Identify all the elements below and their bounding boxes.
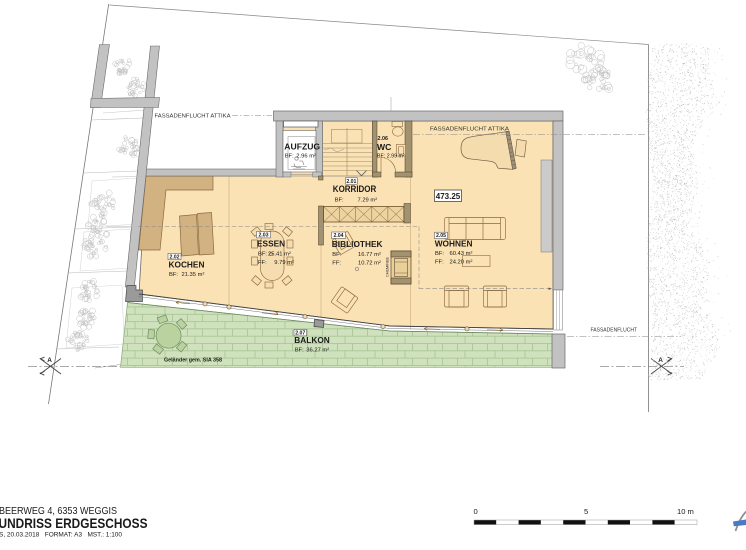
svg-text:FASSADENFLUCHT ATTIKA: FASSADENFLUCHT ATTIKA <box>155 114 231 120</box>
svg-text:CHEMINEE: CHEMINEE <box>386 257 390 278</box>
svg-text:2.06: 2.06 <box>378 136 389 142</box>
svg-text:S, 20.03.2018 FORMAT: A3 M: S, 20.03.2018 FORMAT: A3 MST.: 1:100 <box>0 532 122 539</box>
svg-text:FASSADENFLUCHT: FASSADENFLUCHT <box>591 328 638 334</box>
svg-text:FF:9.79 m²: FF:9.79 m² <box>258 260 294 266</box>
svg-text:KOCHEN: KOCHEN <box>169 259 205 269</box>
svg-text:AUFZUG: AUFZUG <box>284 142 320 152</box>
svg-text:Geländer gem. SIA 358: Geländer gem. SIA 358 <box>164 358 222 364</box>
svg-text:BF: 2.99 m²: BF: 2.99 m² <box>377 153 405 159</box>
svg-text:473.25: 473.25 <box>436 192 461 201</box>
svg-text:10 m: 10 m <box>677 507 694 516</box>
svg-text:5: 5 <box>584 507 588 516</box>
svg-text:FASSADENFLUCHT ATTIKA: FASSADENFLUCHT ATTIKA <box>430 127 509 133</box>
svg-text:BIBLIOTHEK: BIBLIOTHEK <box>332 239 383 249</box>
svg-text:A: A <box>47 357 52 364</box>
svg-text:0: 0 <box>474 507 478 516</box>
svg-text:FF:24.20 m²: FF:24.20 m² <box>435 260 472 266</box>
svg-text:UNDRISS ERDGESCHOSS: UNDRISS ERDGESCHOSS <box>0 516 148 531</box>
svg-text:BF:36.27 m²: BF:36.27 m² <box>295 348 330 354</box>
svg-text:BF:25.41 m²: BF:25.41 m² <box>258 252 291 258</box>
svg-text:BF:2.96 m²: BF:2.96 m² <box>285 154 316 160</box>
svg-text:WC: WC <box>377 142 391 152</box>
svg-text:BALKON: BALKON <box>294 335 330 345</box>
svg-text:ESSEN: ESSEN <box>257 238 285 248</box>
svg-text:WOHNEN: WOHNEN <box>435 239 473 249</box>
svg-text:KORRIDOR: KORRIDOR <box>333 184 377 194</box>
svg-text:BF:60.43 m²: BF:60.43 m² <box>435 251 472 257</box>
svg-text:BF:21.35 m²: BF:21.35 m² <box>169 272 204 278</box>
